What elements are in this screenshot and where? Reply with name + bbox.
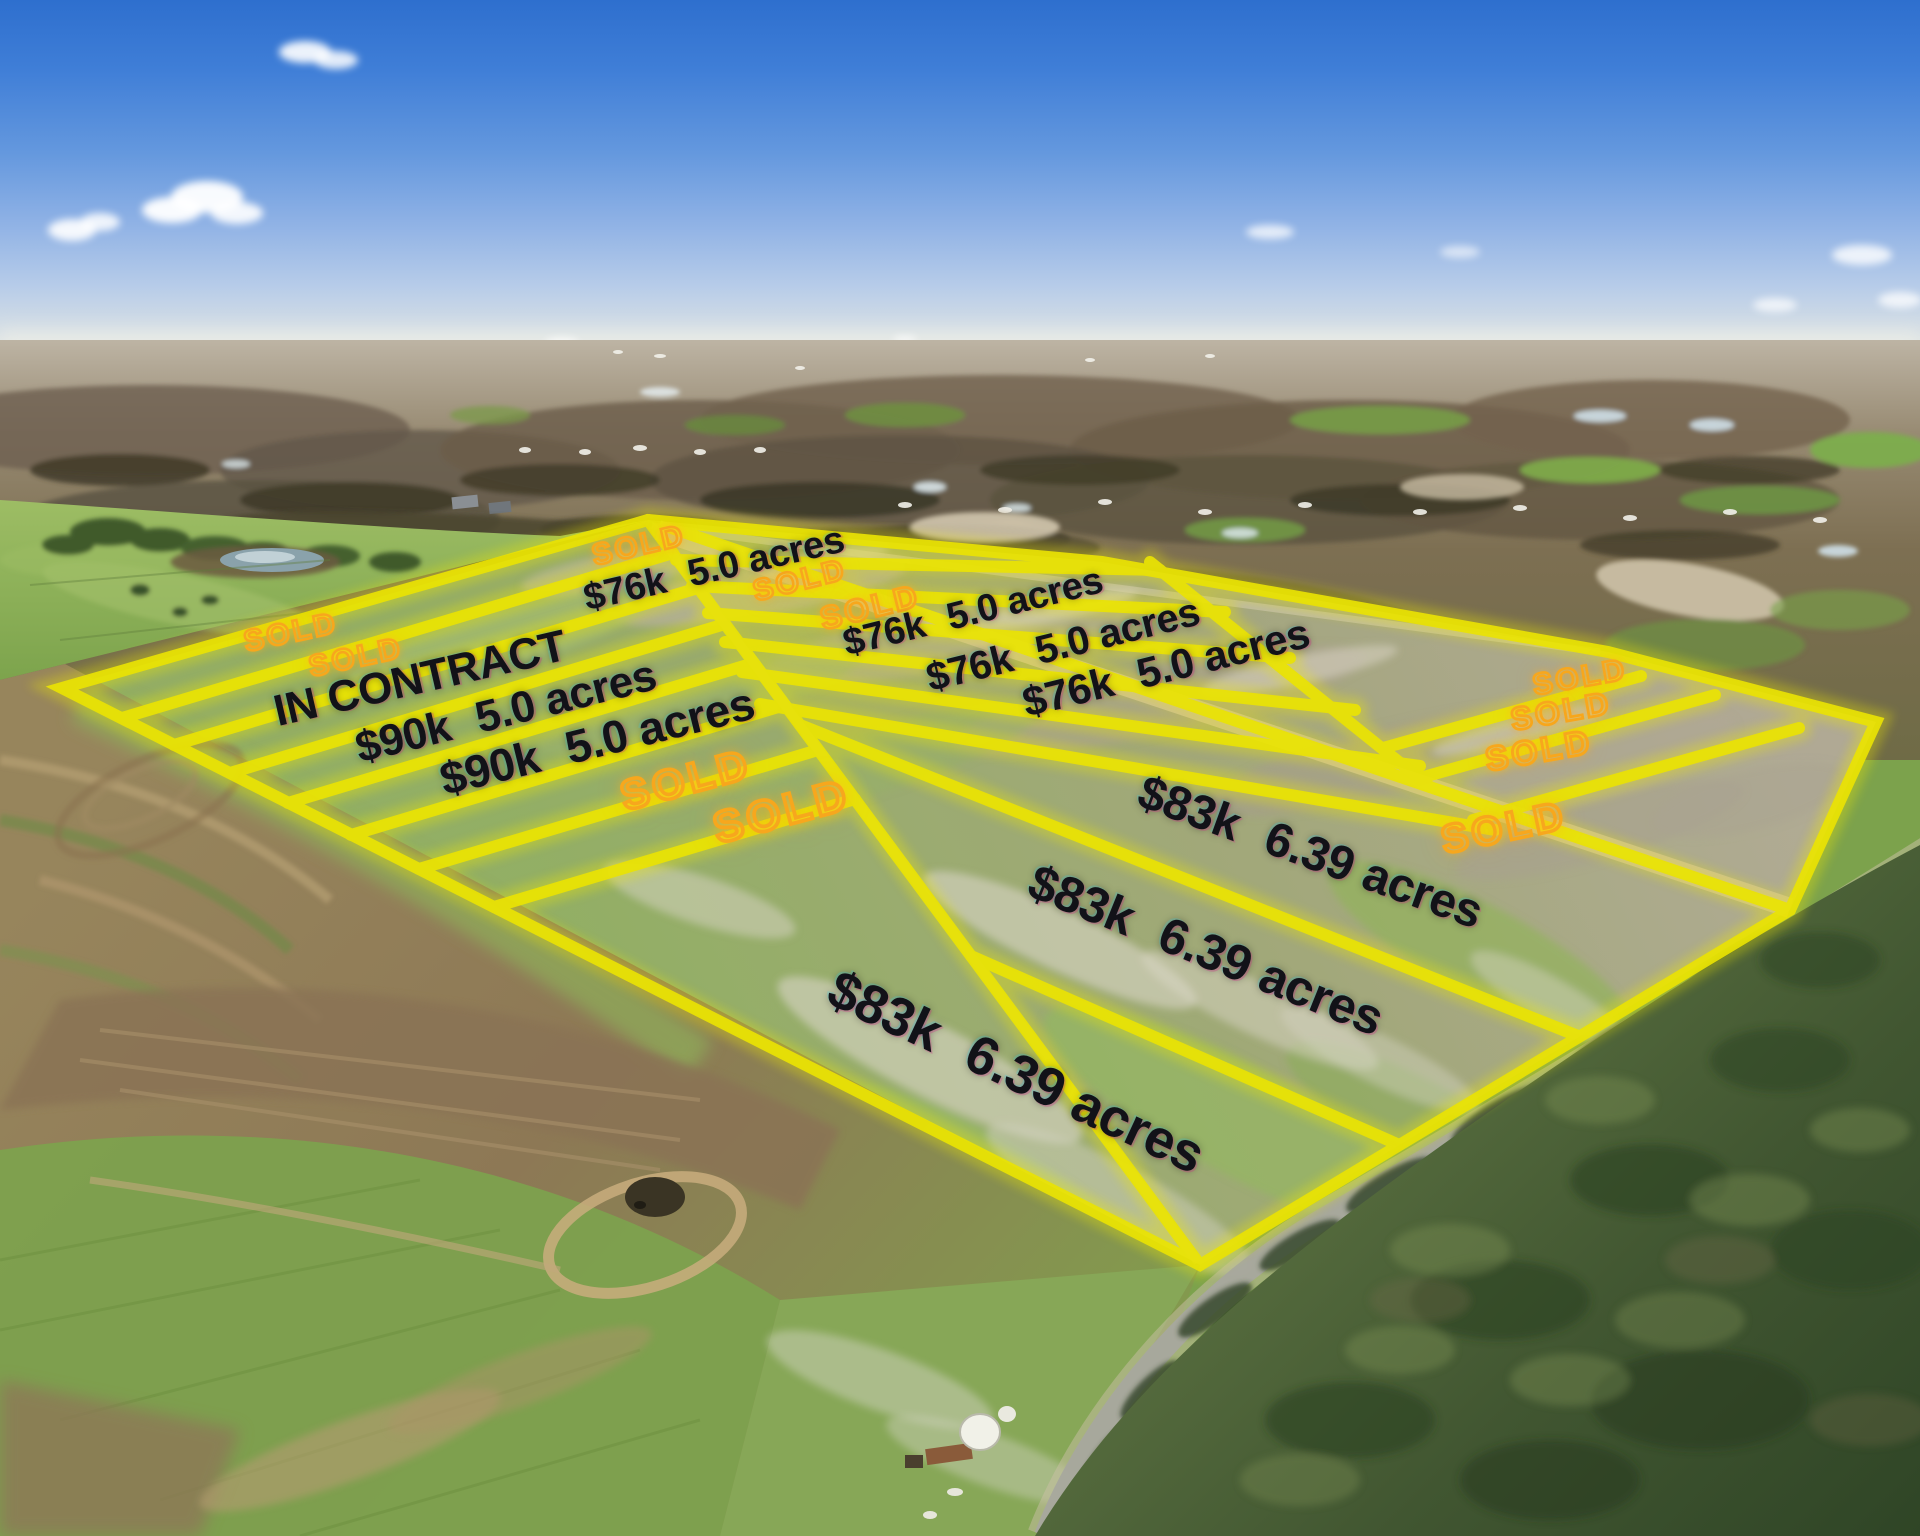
well-pad (625, 1177, 685, 1217)
aerial-photo (0, 0, 1920, 1536)
aerial-lot-map: SOLDSOLDSOLDSOLDSOLDSOLDSOLDSOLDSOLDSOLD… (0, 0, 1920, 1536)
